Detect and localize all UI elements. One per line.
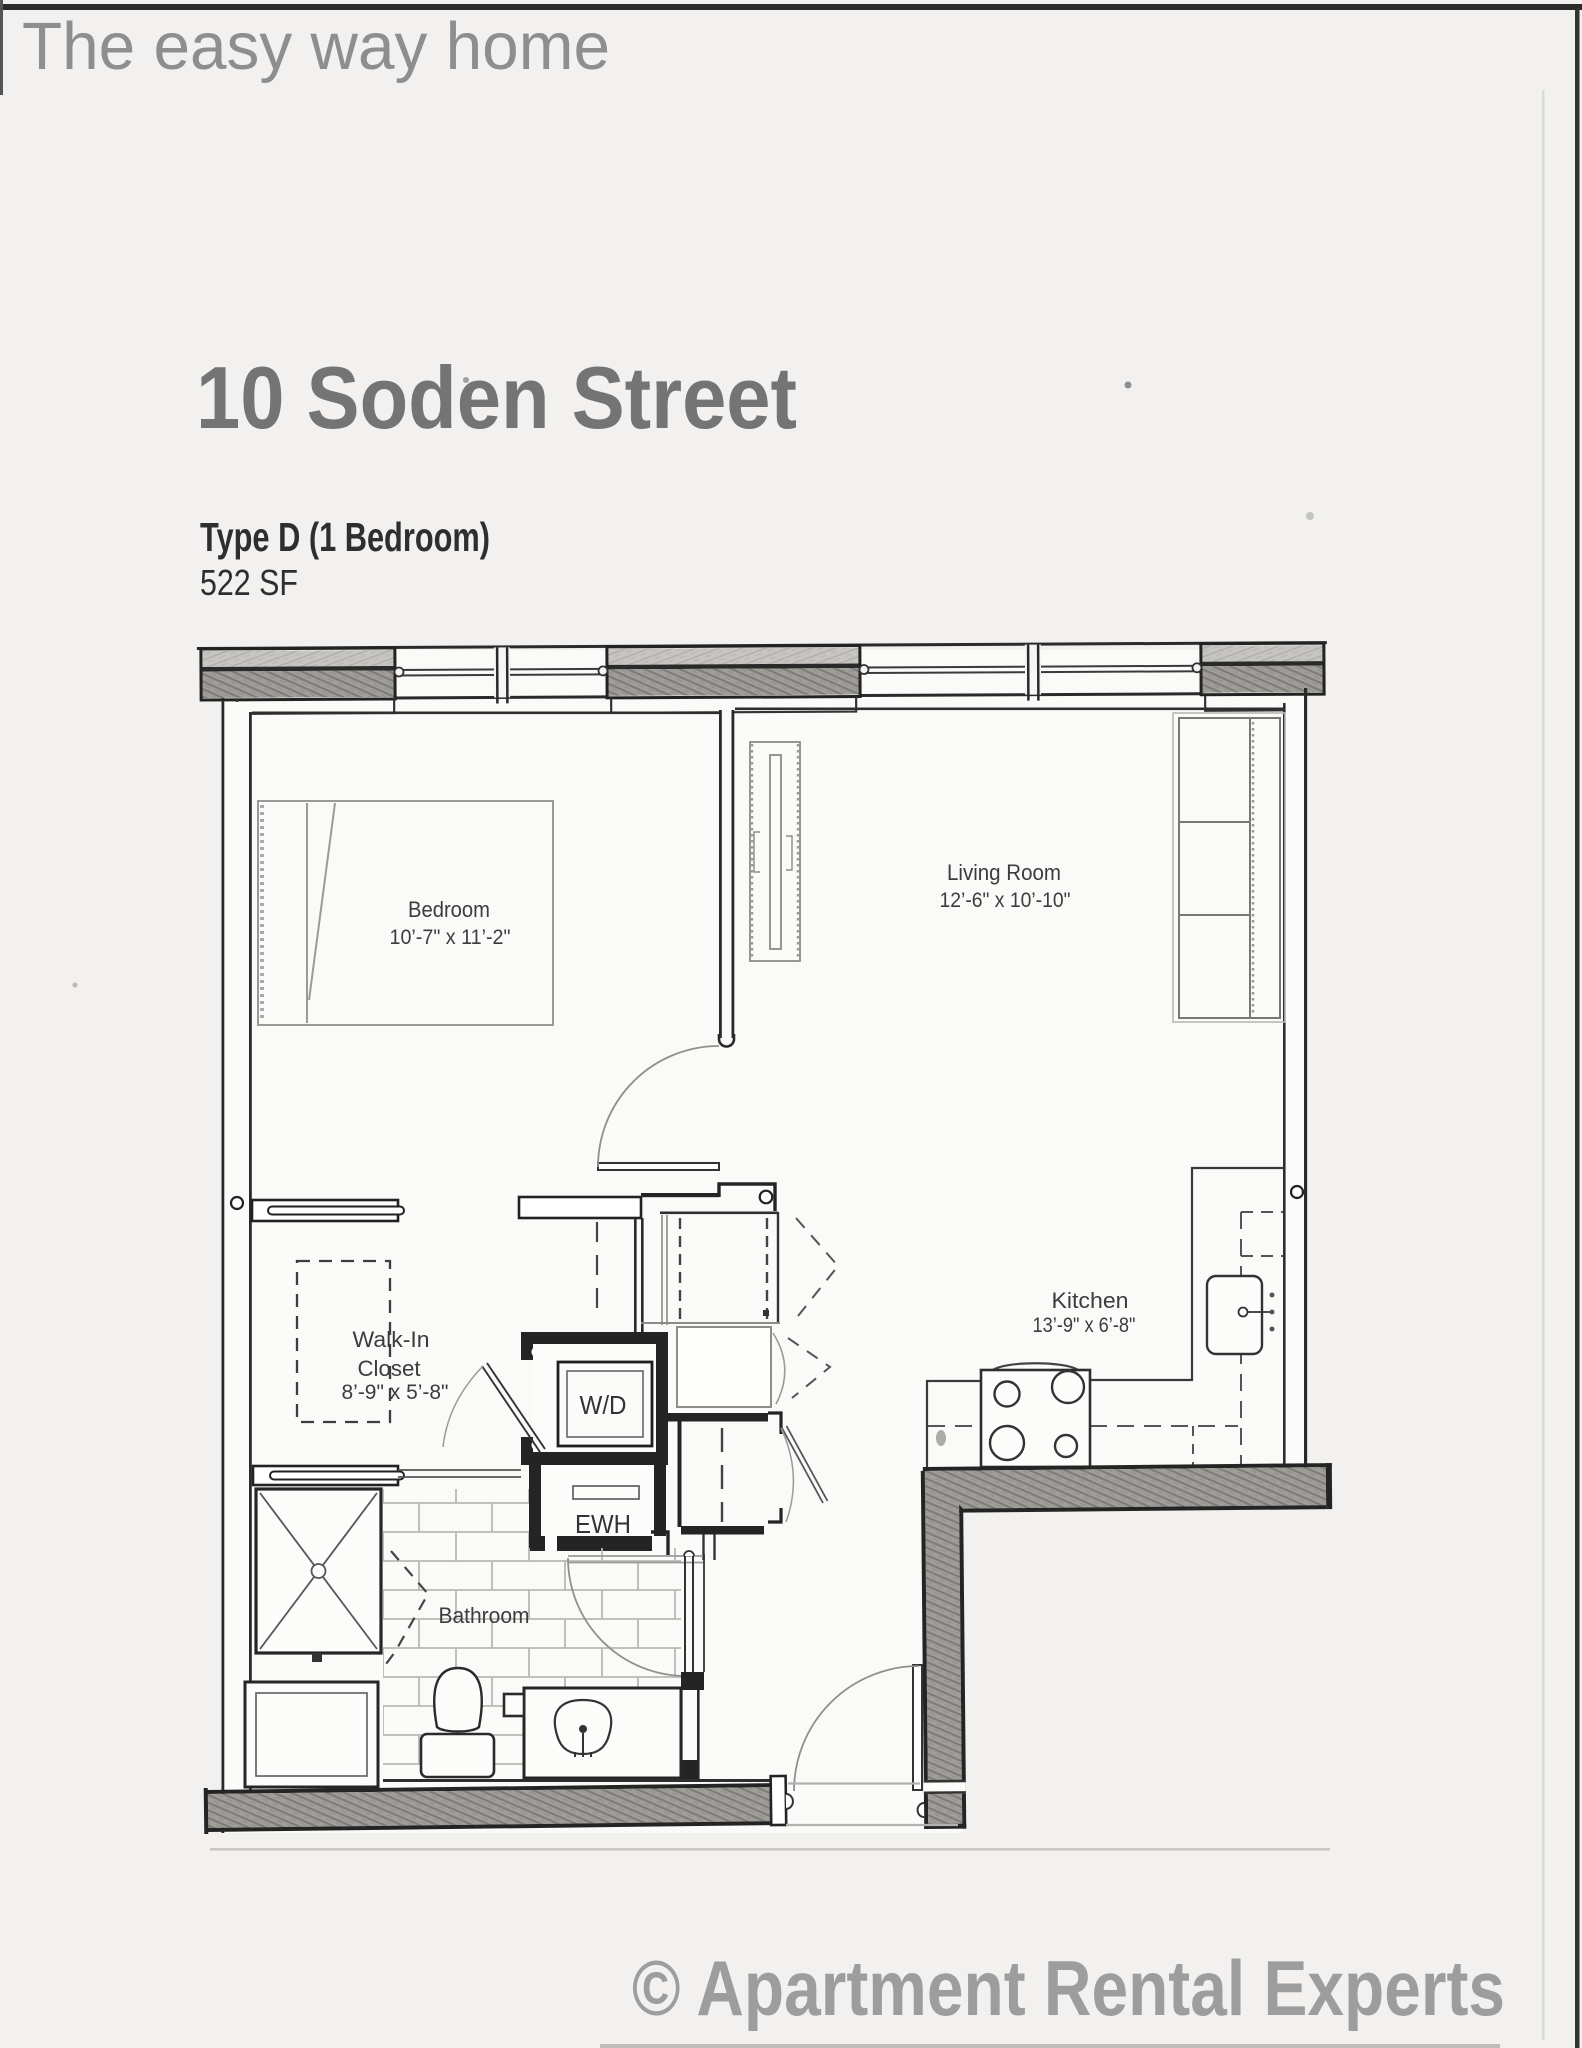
svg-text:522 SF: 522 SF bbox=[200, 562, 298, 603]
svg-text:Kitchen: Kitchen bbox=[1052, 1288, 1129, 1313]
svg-text:10 Soden Street: 10 Soden Street bbox=[196, 348, 797, 447]
svg-text:The easy way home: The easy way home bbox=[22, 9, 610, 84]
svg-text:Walk-In: Walk-In bbox=[353, 1327, 430, 1352]
svg-text:Type D (1 Bedroom): Type D (1 Bedroom) bbox=[200, 514, 490, 560]
svg-text:EWH: EWH bbox=[575, 1509, 631, 1539]
svg-text:Living Room: Living Room bbox=[947, 860, 1061, 885]
svg-text:Closet: Closet bbox=[358, 1356, 421, 1381]
svg-text:13’-9" x 6’-8": 13’-9" x 6’-8" bbox=[1033, 1314, 1136, 1337]
svg-text:W/D: W/D bbox=[580, 1390, 627, 1420]
svg-text:© Apartment Rental Experts: © Apartment Rental Experts bbox=[632, 1944, 1505, 2032]
svg-text:8’-9" x 5’-8": 8’-9" x 5’-8" bbox=[342, 1381, 449, 1404]
svg-text:Bedroom: Bedroom bbox=[408, 897, 490, 922]
svg-text:12’-6" x 10’-10": 12’-6" x 10’-10" bbox=[940, 889, 1071, 912]
svg-text:10’-7" x 11’-2": 10’-7" x 11’-2" bbox=[390, 926, 511, 949]
svg-text:Bathroom: Bathroom bbox=[439, 1603, 530, 1628]
